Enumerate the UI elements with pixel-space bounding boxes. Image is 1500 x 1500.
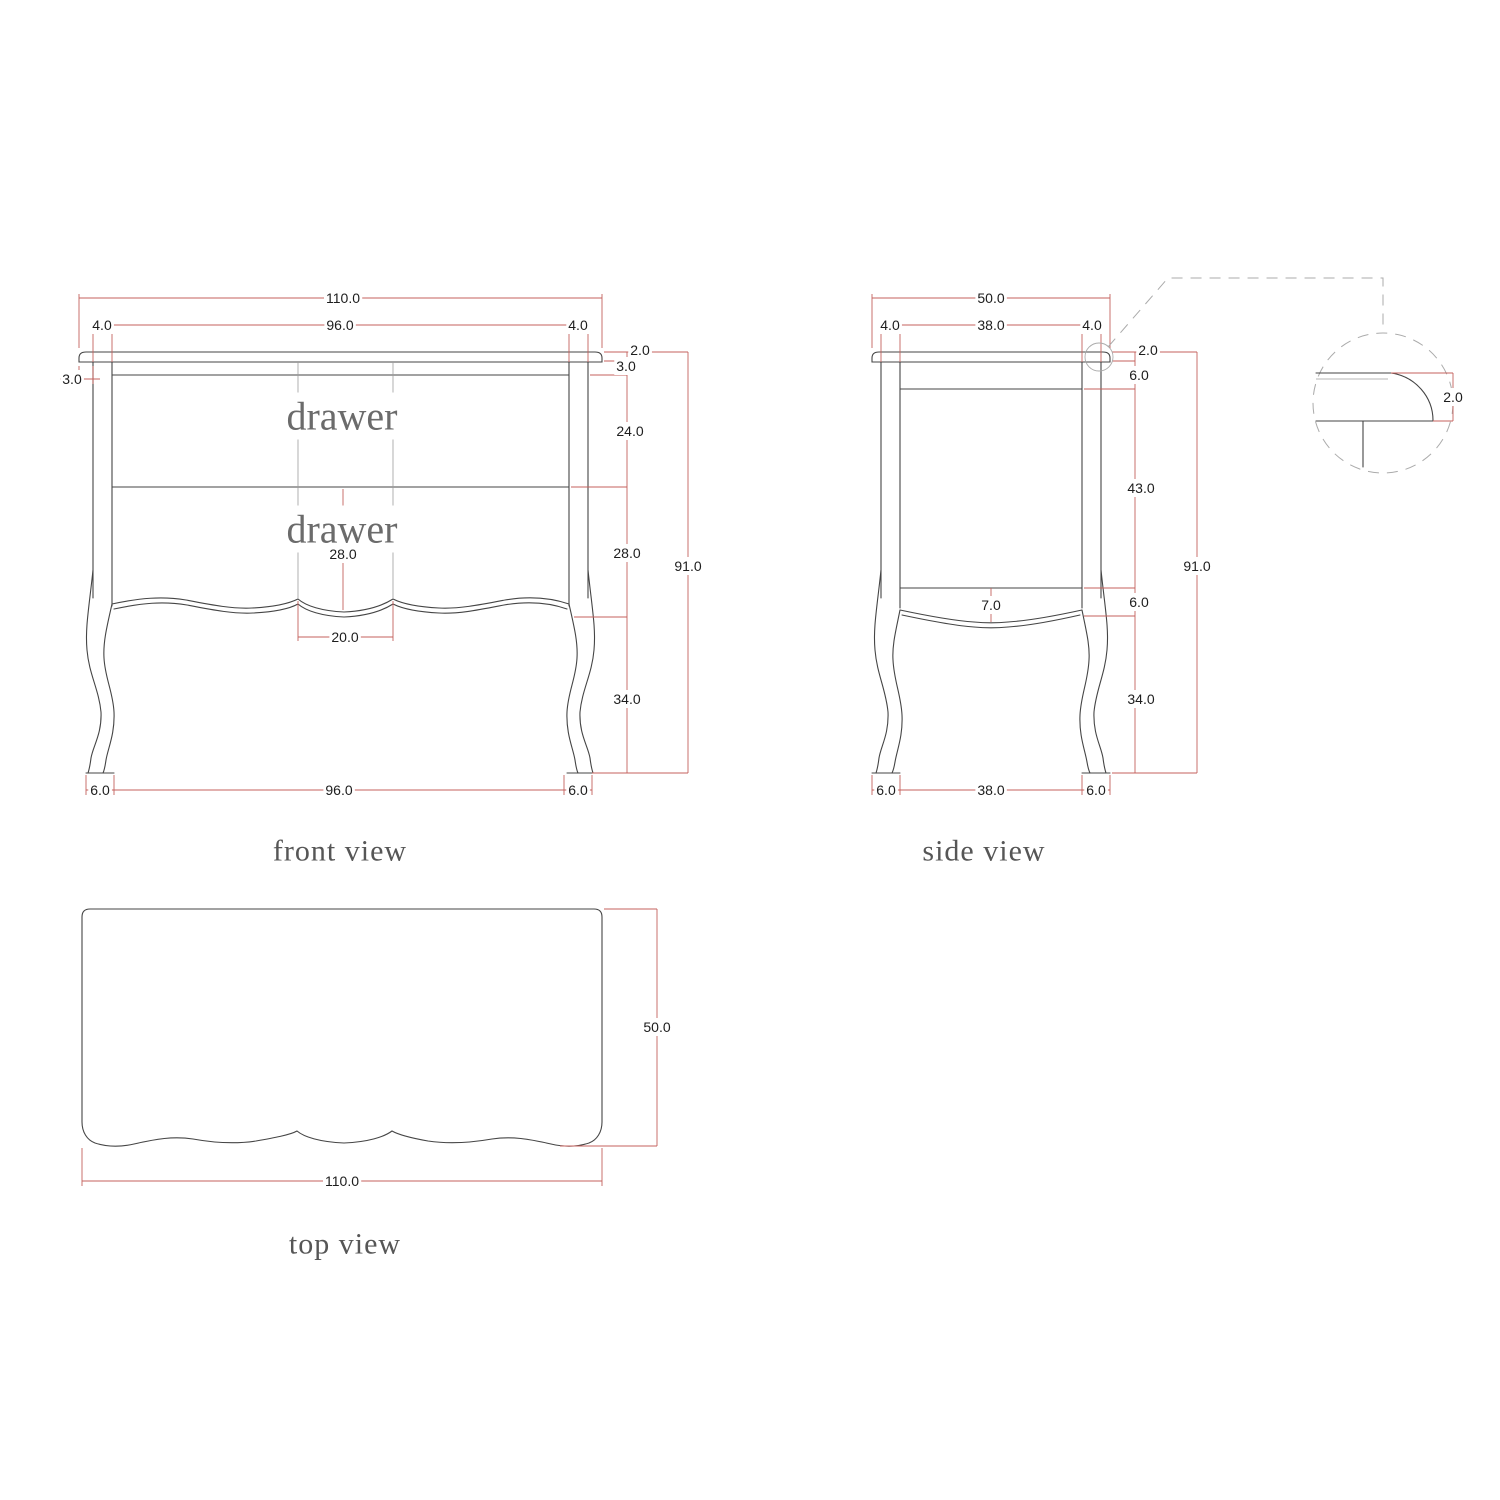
top-view-structure [82, 909, 602, 1146]
side-dim-top-thickness: 2.0 [1138, 342, 1158, 358]
side-dim-feet-span: 38.0 [977, 782, 1004, 798]
detail-view-circle [1313, 333, 1453, 473]
front-dim-overall-height: 91.0 [674, 558, 701, 574]
front-dim-overall-width: 110.0 [326, 290, 360, 306]
top-view-dimensions [82, 909, 657, 1186]
front-drawer-top-label: drawer [286, 394, 397, 439]
front-dim-drawer-opening-width: 96.0 [326, 317, 353, 333]
front-dim-top-overhang: 3.0 [62, 371, 82, 387]
top-dim-overall-depth: 50.0 [643, 1019, 670, 1035]
side-dim-top-rail-height: 6.0 [1129, 367, 1149, 383]
front-dim-foot-right: 6.0 [568, 782, 588, 798]
side-view-structure [872, 352, 1110, 773]
front-dim-right-post-width: 4.0 [568, 317, 588, 333]
front-dim-bottom-drawer-height: 28.0 [613, 545, 640, 561]
front-dim-foot-left: 6.0 [90, 782, 110, 798]
front-dim-top-rail-height: 3.0 [616, 358, 636, 374]
side-dim-foot-front: 6.0 [876, 782, 896, 798]
front-view-title: front view [273, 835, 407, 868]
side-dim-back-post-width: 4.0 [1082, 317, 1102, 333]
side-dim-foot-back: 6.0 [1086, 782, 1106, 798]
top-dim-overall-width: 110.0 [325, 1173, 359, 1189]
front-dim-feet-span: 96.0 [325, 782, 352, 798]
side-view-title: side view [922, 835, 1045, 868]
labels: drawer drawer 110.0 96.0 4.0 4.0 3.0 2.0… [60, 289, 1465, 1261]
front-dim-top-thickness: 2.0 [630, 342, 650, 358]
furniture-drawing-canvas: drawer drawer 110.0 96.0 4.0 4.0 3.0 2.0… [0, 0, 1500, 1500]
front-drawer-bottom-label: drawer [286, 507, 397, 552]
detail-leader-line [1108, 278, 1383, 347]
detail-dim-top-edge-thickness: 2.0 [1443, 389, 1463, 405]
side-dim-leg-height: 34.0 [1127, 691, 1154, 707]
side-dim-bottom-rail-height: 6.0 [1129, 594, 1149, 610]
front-dim-left-post-width: 4.0 [92, 317, 112, 333]
side-dim-panel-height: 43.0 [1127, 480, 1154, 496]
front-dim-leg-height: 34.0 [613, 691, 640, 707]
side-dim-overall-height: 91.0 [1183, 558, 1210, 574]
side-dim-overall-depth: 50.0 [977, 290, 1004, 306]
detail-marker-circle [1085, 343, 1113, 371]
side-dim-inner-depth: 38.0 [977, 317, 1004, 333]
front-dim-top-drawer-height: 24.0 [616, 423, 643, 439]
front-dim-handle-spacing: 20.0 [331, 629, 358, 645]
top-view-title: top view [289, 1228, 401, 1261]
technical-drawing-sheet: drawer drawer 110.0 96.0 4.0 4.0 3.0 2.0… [0, 0, 1500, 1500]
side-dim-apron-drop: 7.0 [981, 597, 1001, 613]
side-dim-front-post-width: 4.0 [880, 317, 900, 333]
front-dim-bottom-drawer-height-center: 28.0 [329, 546, 356, 562]
